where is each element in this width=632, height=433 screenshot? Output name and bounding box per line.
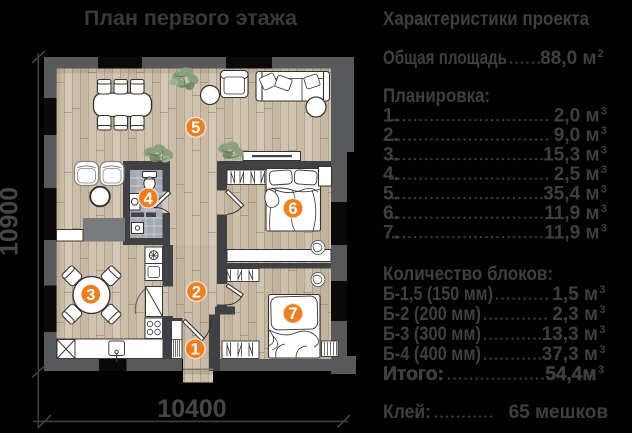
svg-text:3: 3 xyxy=(601,184,607,196)
svg-text:1: 1 xyxy=(191,341,200,359)
svg-text:13,3 м: 13,3 м xyxy=(542,324,598,345)
svg-text:Характеристики проекта: Характеристики проекта xyxy=(383,9,589,30)
svg-text:3: 3 xyxy=(599,304,605,316)
svg-text:2.: 2. xyxy=(383,125,399,146)
svg-text:4: 4 xyxy=(144,190,154,208)
svg-text:2,5 м: 2,5 м xyxy=(554,164,600,185)
svg-text:3.: 3. xyxy=(383,145,399,166)
svg-text:54,4м: 54,4м xyxy=(545,364,596,385)
svg-text:5: 5 xyxy=(191,119,200,137)
svg-text:3: 3 xyxy=(601,164,607,176)
svg-text:3: 3 xyxy=(601,223,607,235)
svg-text:65 мешков: 65 мешков xyxy=(509,402,608,423)
svg-text:1,5 м: 1,5 м xyxy=(552,284,598,305)
svg-text:2: 2 xyxy=(192,283,201,301)
svg-text:11,9 м: 11,9 м xyxy=(544,203,599,224)
svg-text:3: 3 xyxy=(601,106,607,118)
svg-text:3: 3 xyxy=(598,364,604,376)
svg-text:Итого:: Итого: xyxy=(383,364,444,385)
svg-text:2: 2 xyxy=(598,48,604,60)
svg-text:Б-2 (200 мм): Б-2 (200 мм) xyxy=(383,304,481,325)
svg-text:Планировка:: Планировка: xyxy=(383,86,490,107)
svg-text:Клей:: Клей: xyxy=(383,402,431,423)
svg-text:37,3 м: 37,3 м xyxy=(542,344,598,365)
svg-text:3: 3 xyxy=(86,287,95,304)
svg-text:План первого этажа: План первого этажа xyxy=(84,7,297,30)
svg-text:11,9 м: 11,9 м xyxy=(544,223,599,244)
svg-text:7.: 7. xyxy=(383,223,399,244)
svg-text:7: 7 xyxy=(288,305,297,323)
svg-text:5.: 5. xyxy=(383,184,399,205)
svg-text:15,3 м: 15,3 м xyxy=(543,145,599,166)
svg-text:3: 3 xyxy=(599,344,605,356)
svg-text:10400: 10400 xyxy=(158,395,227,423)
svg-text:6: 6 xyxy=(288,200,297,218)
svg-text:35,4 м: 35,4 м xyxy=(543,184,599,205)
svg-text:1.: 1. xyxy=(383,106,399,127)
svg-text:2,3 м: 2,3 м xyxy=(552,304,598,325)
svg-text:9,0 м: 9,0 м xyxy=(554,125,600,146)
svg-text:Б-3 (300 мм): Б-3 (300 мм) xyxy=(383,324,481,345)
svg-text:Б-4 (400 мм): Б-4 (400 мм) xyxy=(383,344,481,365)
svg-text:Общая площадь: Общая площадь xyxy=(383,48,507,69)
svg-text:3: 3 xyxy=(599,284,605,296)
svg-text:3: 3 xyxy=(601,145,607,157)
svg-text:4.: 4. xyxy=(383,164,399,185)
svg-text:3: 3 xyxy=(599,324,605,336)
svg-text:Количество блоков:: Количество блоков: xyxy=(383,264,553,285)
svg-text:88,0 м: 88,0 м xyxy=(540,48,596,69)
svg-text:10900: 10900 xyxy=(0,187,24,256)
svg-text:6.: 6. xyxy=(383,203,399,224)
svg-text:3: 3 xyxy=(601,203,607,215)
svg-text:3: 3 xyxy=(601,125,607,137)
svg-text:2,0 м: 2,0 м xyxy=(554,106,600,127)
svg-text:Б-1,5 (150 мм): Б-1,5 (150 мм) xyxy=(383,284,493,305)
